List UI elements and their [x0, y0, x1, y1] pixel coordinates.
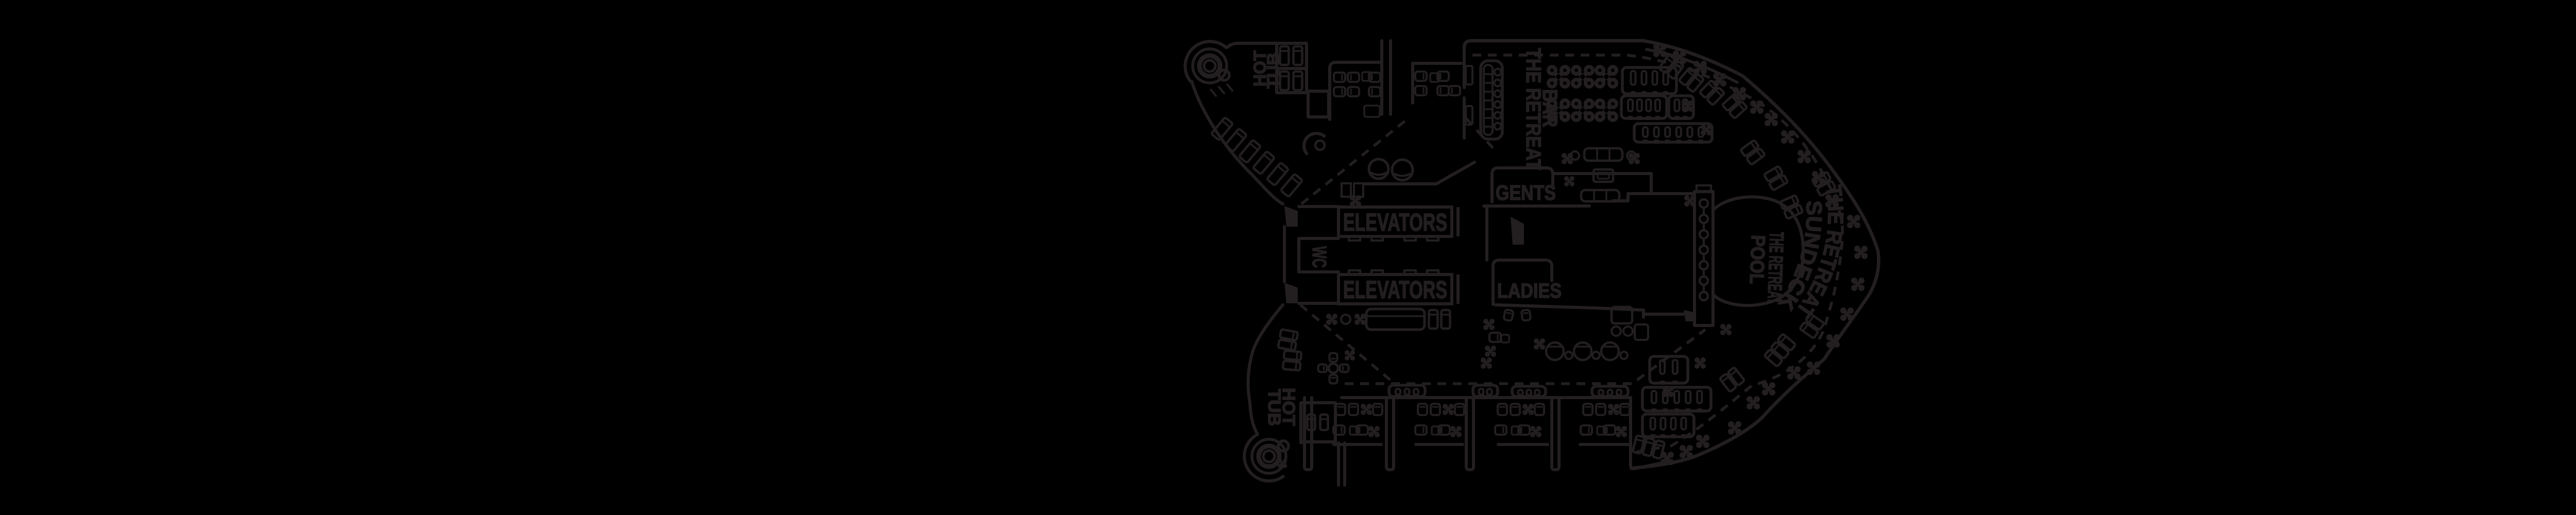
- svg-text:WC: WC: [1308, 246, 1330, 268]
- svg-text:HOT: HOT: [1279, 388, 1298, 426]
- svg-text:ELEVATORS: ELEVATORS: [1343, 277, 1447, 304]
- svg-text:POOL: POOL: [1745, 235, 1769, 284]
- svg-text:ELEVATORS: ELEVATORS: [1343, 209, 1447, 236]
- svg-text:GENTS: GENTS: [1496, 181, 1556, 204]
- svg-text:LADIES: LADIES: [1497, 280, 1562, 302]
